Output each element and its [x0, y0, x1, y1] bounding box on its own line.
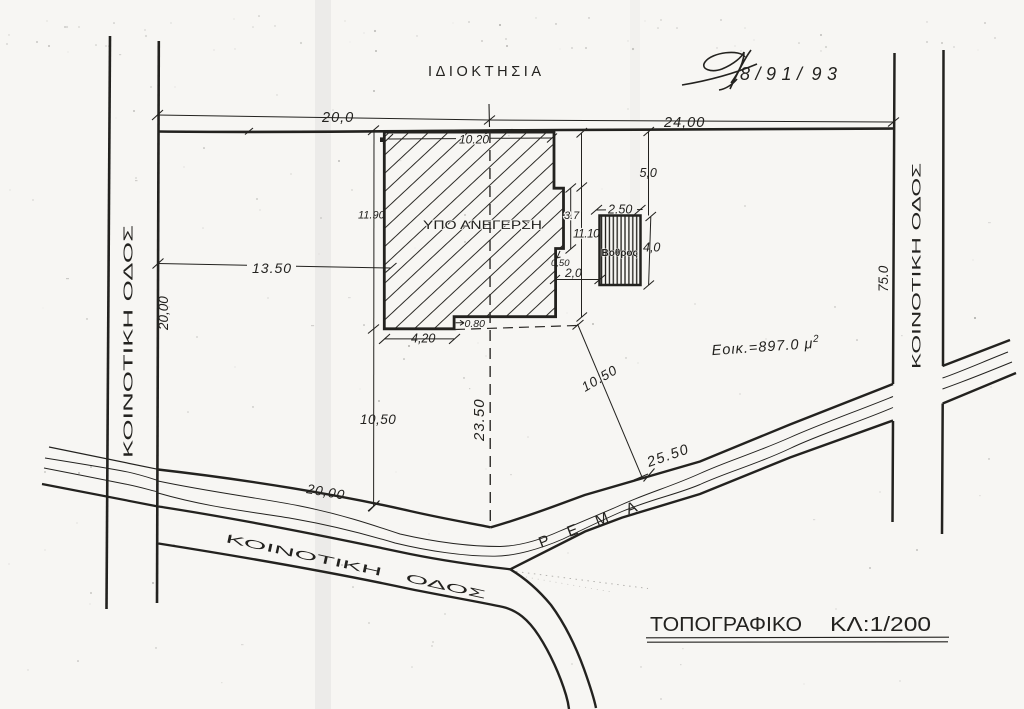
svg-text:11.10: 11.10	[573, 227, 600, 241]
svg-text:3.7: 3.7	[564, 210, 580, 222]
svg-text:20,00: 20,00	[156, 296, 171, 331]
svg-text:0.80: 0.80	[465, 318, 486, 330]
svg-text:10.20: 10.20	[459, 133, 489, 147]
svg-text:ΤΟΠΟΓΡΑΦΙΚΟ: ΤΟΠΟΓΡΑΦΙΚΟ	[650, 614, 802, 636]
svg-text:11.90: 11.90	[358, 210, 386, 222]
svg-text:ΚΟΙΝΟΤΙΚΗ ΟΔΟΣ: ΚΟΙΝΟΤΙΚΗ ΟΔΟΣ	[121, 225, 136, 458]
svg-text:ΚΟΙΝΟΤΙΚΗ ΟΔΟΣ: ΚΟΙΝΟΤΙΚΗ ΟΔΟΣ	[910, 163, 924, 369]
svg-text:8/91/93: 8/91/93	[740, 64, 843, 84]
svg-text:ΚΛ:1/200: ΚΛ:1/200	[830, 614, 931, 636]
svg-text:20,0: 20,0	[321, 110, 354, 126]
svg-text:4,0: 4,0	[643, 241, 660, 255]
svg-text:23.50: 23.50	[471, 398, 488, 442]
svg-text:24,00: 24,00	[663, 115, 705, 131]
svg-text:Βοθρος: Βοθρος	[602, 248, 638, 259]
svg-text:13.50: 13.50	[252, 260, 292, 276]
svg-text:ΥΠΟ ΑΝΕΓΕΡΣΗ: ΥΠΟ ΑΝΕΓΕΡΣΗ	[423, 218, 542, 232]
svg-text:2,0: 2,0	[564, 266, 582, 280]
svg-text:ΙΔΙΟΚΤΗΣΙΑ: ΙΔΙΟΚΤΗΣΙΑ	[428, 64, 545, 80]
svg-text:4,20: 4,20	[411, 332, 435, 346]
svg-text:5,0: 5,0	[640, 166, 657, 180]
svg-text:10,50: 10,50	[360, 412, 396, 427]
svg-text:75.0: 75.0	[876, 265, 891, 292]
